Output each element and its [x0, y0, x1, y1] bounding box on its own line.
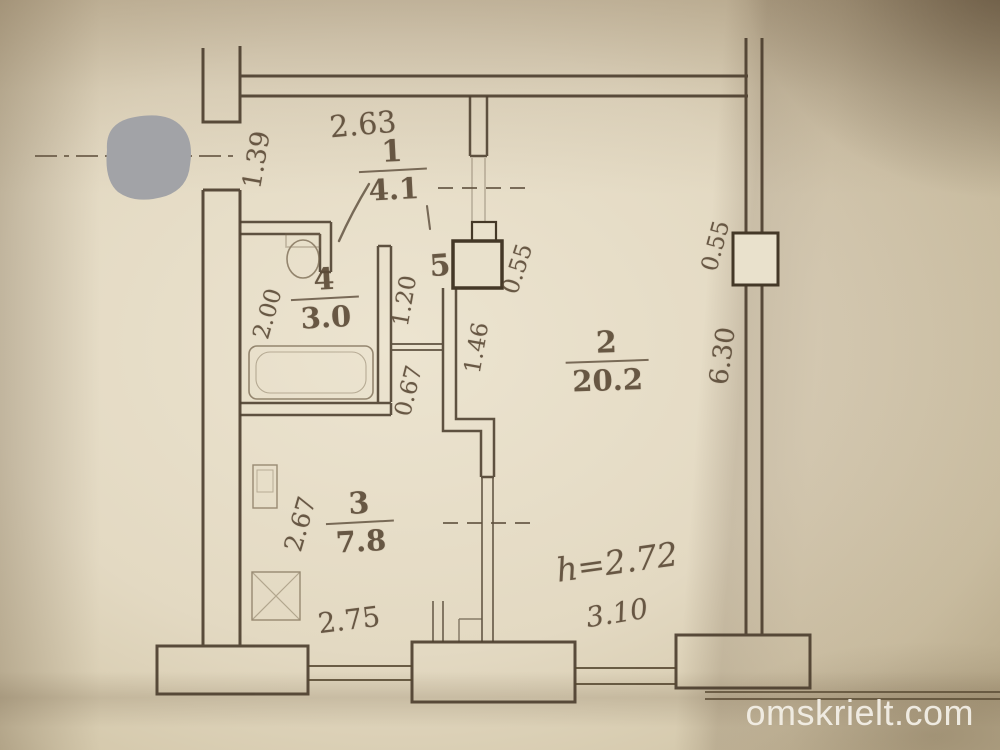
floorplan-photo: 1 4.1 2 20.2 3 7.8 4 3.0 5 2.63 1.39 2.0…: [0, 0, 1000, 750]
room-2-area: 20.2: [566, 359, 650, 399]
watermark: omskrielt.com: [745, 692, 974, 734]
dim-entry-opening: 1.39: [237, 129, 277, 191]
room-1-number: 1: [377, 137, 408, 170]
room-3-area: 7.8: [326, 520, 396, 561]
room-4-label: 4 3.0: [289, 264, 361, 337]
room-2-number: 2: [591, 328, 621, 361]
dim-corridor-width: 2.63: [328, 105, 398, 146]
ceiling-height-note: h=2.72: [554, 534, 681, 590]
dim-kitchen-depth: 2.67: [278, 493, 321, 555]
labels-layer: 1 4.1 2 20.2 3 7.8 4 3.0 5 2.63 1.39 2.0…: [0, 0, 1000, 750]
room-3-number: 3: [344, 489, 375, 522]
room-1-label: 1 4.1: [357, 136, 429, 209]
dim-duct-hall: 0.55: [498, 241, 539, 298]
room-4-area: 3.0: [291, 296, 361, 337]
dim-balcony-width: 3.10: [584, 592, 651, 634]
dim-niche-depth: 1.46: [460, 321, 494, 376]
room-3-label: 3 7.8: [324, 488, 396, 561]
room-1-area: 4.1: [359, 168, 429, 209]
room-2-label: 2 20.2: [564, 327, 649, 399]
dim-bathroom-depth: 2.00: [248, 286, 287, 342]
dim-hall-width: 1.20: [388, 274, 422, 329]
room-4-number: 4: [309, 265, 340, 298]
dim-room2-depth: 6.30: [704, 325, 742, 387]
dim-kitchen-width: 2.75: [316, 600, 382, 640]
dim-wall-segment: 0.67: [390, 363, 428, 419]
room-5-number: 5: [428, 248, 451, 284]
dim-duct-wall: 0.55: [697, 218, 735, 274]
